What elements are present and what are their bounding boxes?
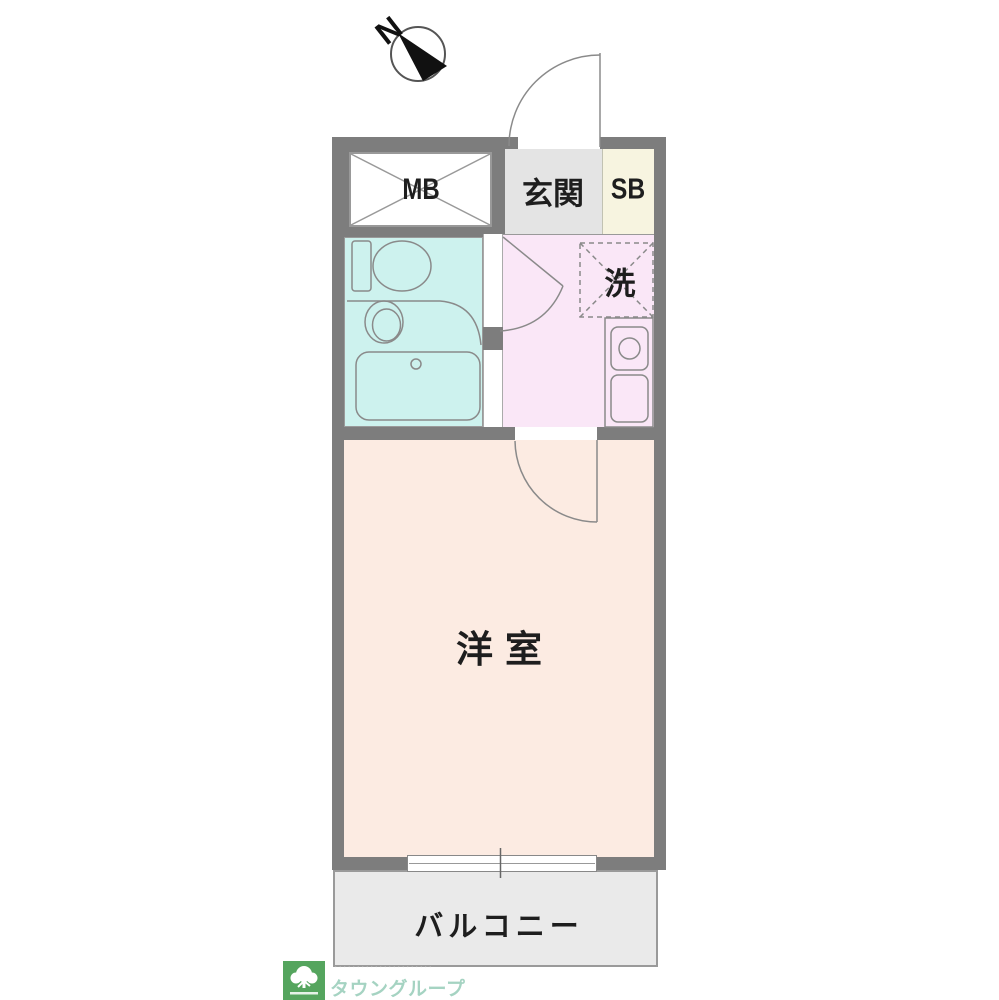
floorplan-canvas: N xyxy=(0,0,999,1000)
wall-left xyxy=(332,137,344,870)
balcony-label: バルコニー xyxy=(414,903,583,945)
western-room-label: 洋室 xyxy=(456,619,554,673)
compass-circle xyxy=(391,27,445,81)
compass-north-label: N xyxy=(369,9,409,52)
wall-bottom-right xyxy=(597,857,666,870)
shoe-box-label: SB xyxy=(611,174,645,207)
balcony-window xyxy=(407,855,597,872)
tree-icon xyxy=(283,961,325,1000)
wall-bottom-left xyxy=(332,857,407,870)
laundry-label: 洗 xyxy=(605,259,636,304)
logo-brand-text: タウングループ xyxy=(330,974,465,1000)
logo-tagline: ･･････････････････････ xyxy=(334,962,433,972)
entrance-label: 玄関 xyxy=(522,169,584,214)
bathroom-area xyxy=(344,237,483,427)
wall-top-left xyxy=(332,137,518,149)
entry-door-arc-icon xyxy=(509,53,600,147)
compass-icon: N xyxy=(369,9,447,81)
wall-right xyxy=(654,137,666,870)
north-arrow-icon xyxy=(398,33,447,81)
bathroom-doorway-wall-block xyxy=(483,327,503,350)
logo-mark xyxy=(283,961,325,1000)
meter-box-label: MB xyxy=(402,173,439,207)
wall-mid-right xyxy=(597,427,666,440)
wall-mid-left xyxy=(332,427,515,440)
entry-door-swing-arc xyxy=(509,55,600,146)
